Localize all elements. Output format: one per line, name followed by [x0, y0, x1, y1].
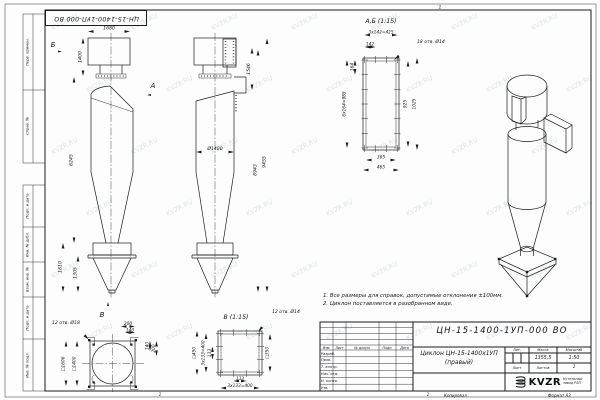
tb-mass-value: 1355,5 [529, 356, 557, 361]
tb-row-razrab: Разраб. [321, 352, 335, 356]
dim-ab-opening-width: 365 [377, 155, 385, 161]
dim-v-flange-square: □450 [192, 347, 198, 360]
tb-sheets-value: 1 [557, 365, 591, 370]
view-arrow-a-label: А [150, 82, 156, 90]
section-ab-flange-outer [363, 58, 399, 150]
dim-side-height-to-inlet: 8943 [253, 164, 259, 176]
front-outlet-box [88, 38, 130, 65]
top-repeat-stamp-text: ЦН-15-1400-1УП-000 ВО [54, 15, 139, 22]
view-arrow-b-label: Б [51, 41, 56, 49]
tb-row-tkontr: Т. контр. [321, 365, 338, 369]
top-repeat-stamp: ЦН-15-1400-1УП-000 ВО [45, 10, 147, 26]
section-v-flange-inner [221, 334, 259, 372]
format-label: Формат А3 [548, 393, 571, 398]
margin-field-inv-podl: Инв. № подл. [26, 352, 30, 377]
dim-side-total-height: 9455 [262, 156, 268, 168]
dim-ab-flange-height: 1025 [412, 98, 418, 109]
dim-bottom-outer-square: □1606 [61, 356, 67, 371]
front-view: 1680 1400 6245 1810 1305 Б А В [46, 26, 163, 320]
tb-row-nachotd: Нач. отд. [321, 372, 338, 376]
dim-side-body-diameter: Ø1400 [206, 145, 222, 152]
tb-mass-label: Масса [529, 348, 557, 352]
tb-company-cell: KVZR Котельный завод РЭП [505, 374, 591, 390]
tb-row-prov: Пров. [321, 358, 331, 362]
dim-ab-hole-pitch-one: 142 [366, 42, 374, 48]
tb-company-line2: завод РЭП [563, 382, 582, 386]
dim-ab-hole-pitch-col: 6х164=985 [342, 91, 348, 117]
margin-field-inv-dubl: Инв. № дубл. [26, 232, 30, 257]
dim-ab-edge-offset: 164 [350, 63, 356, 71]
dim-v-opening-square: □350 [265, 347, 271, 360]
tb-sheet-label: Лист [505, 366, 529, 370]
dim-ab-flange-width: 465 [377, 165, 385, 171]
dim-front-hopper-cone-height: 1305 [73, 267, 79, 279]
dim-bottom-inner-square: □1400 [72, 356, 78, 371]
fold-mark-top: 1 [439, 5, 442, 11]
dim-v-pitch-col: 3х133=400 [201, 340, 207, 366]
isometric-view [498, 75, 572, 297]
note-line-1: 1. Все размеры для справок, допустимые о… [323, 293, 563, 301]
dim-ab-hole-pitch-row: 3х142=425 [368, 30, 394, 36]
sheet-frame [5, 4, 596, 397]
tb-doc-number: ЦН-15-1400-1УП-000 ВО [413, 326, 591, 336]
dim-bottom-corner-140-top: 140 [126, 328, 134, 334]
coil-icon [514, 375, 527, 389]
left-margin-fields: Перв. примен. Справ. № Подп. и дата Инв.… [23, 14, 45, 391]
tb-product-name-line1: Циклон ЦН-15-1400х1УП [413, 350, 505, 357]
tb-col-podp: Подп. [379, 346, 396, 350]
dim-front-body-height: 6245 [69, 154, 75, 166]
section-ab-title: А,Б (1:15) [364, 18, 396, 25]
margin-field-podp-data-1: Подп. и дата [26, 193, 30, 219]
dim-bottom-corner-140-right: 140 [145, 342, 151, 350]
dim-bottom-corner-200-right: 200 [151, 344, 157, 352]
tb-col-list: Лист [333, 346, 346, 350]
view-arrow-v-label: В [100, 311, 105, 319]
tb-sheets-label: Листов [529, 366, 557, 370]
tb-product-name-line2: (правый) [413, 359, 505, 366]
dim-front-top-width: 1680 [103, 26, 115, 32]
tb-logo-text: KVZR [529, 377, 561, 388]
dim-front-inlet-height: 1400 [78, 51, 84, 63]
tb-scale-label: Масштаб [557, 348, 591, 352]
section-v-holes-note: 12 отв. Ø14 [272, 308, 300, 315]
section-ab: А,Б (1:15) 3х142=425 142 18 отв. Ø14 164… [342, 18, 445, 171]
bottom-holes-note: 12 отв. Ø18 [52, 319, 80, 326]
tb-company-name: Котельный завод РЭП [563, 378, 582, 386]
copied-label: Копировал [444, 393, 467, 398]
margin-field-vzam-inv: Взам. инв. № [26, 267, 30, 292]
section-v: В (1:15) 12 отв. Ø14 □450 3х133=400 133 … [192, 308, 300, 389]
tb-scale-value: 1:50 [557, 356, 591, 361]
bottom-view: 12 отв. Ø18 □1606 □1400 200 140 140 200 [52, 319, 158, 392]
tb-row-nkontr: Н. контр. [321, 379, 338, 383]
margin-field-podp-data-2: Подп. и дата [26, 305, 30, 331]
dim-ab-opening-height: 925 [403, 100, 409, 108]
tb-lit-label: Лит. [505, 348, 529, 352]
tb-col-data: Дата [396, 346, 413, 350]
section-ab-flange-inner [366, 61, 396, 147]
tb-col-izm: Изм. [320, 346, 333, 350]
section-v-title: В (1:15) [224, 314, 249, 321]
note-line-2: 2. Циклон поставляется в разобранном вид… [323, 301, 563, 309]
side-view: Ø1400 1546 8943 9455 [192, 33, 268, 298]
tb-col-doc: № докум. [346, 346, 379, 350]
margin-field-sprav-n: Справ. № [26, 117, 30, 135]
dim-v-pitch-row: 3х133=400 [227, 383, 253, 389]
notes-block: 1. Все размеры для справок, допустимые о… [323, 293, 563, 309]
front-body-outline [91, 86, 133, 172]
fold-mark-bottom-left: 1 [159, 392, 162, 398]
dim-v-pitch-one-col: 133 [207, 349, 213, 357]
iso-inlet-duct [544, 114, 572, 153]
dim-side-duct-height: 1546 [246, 63, 252, 75]
tb-row-utv: Утв. [321, 386, 329, 390]
dim-v-pitch-one-row: 133 [236, 376, 244, 382]
drawing-sheet: KVZR.RUKVZR.RUKVZR.RUKVZR.RUKVZR.RUKVZR.… [0, 0, 600, 400]
fold-mark-bottom-right: 1 [427, 392, 430, 398]
drawing-canvas: Перв. примен. Справ. № Подп. и дата Инв.… [0, 0, 600, 400]
section-v-flange-outer [218, 331, 262, 375]
section-ab-holes-note: 18 отв. Ø14 [417, 38, 445, 45]
dim-front-hopper-height: 1810 [58, 261, 64, 273]
dim-bottom-corner-200-top: 200 [124, 321, 132, 327]
margin-field-perv-primen: Перв. примен. [26, 38, 30, 66]
iso-hopper-pyramid [501, 265, 555, 296]
